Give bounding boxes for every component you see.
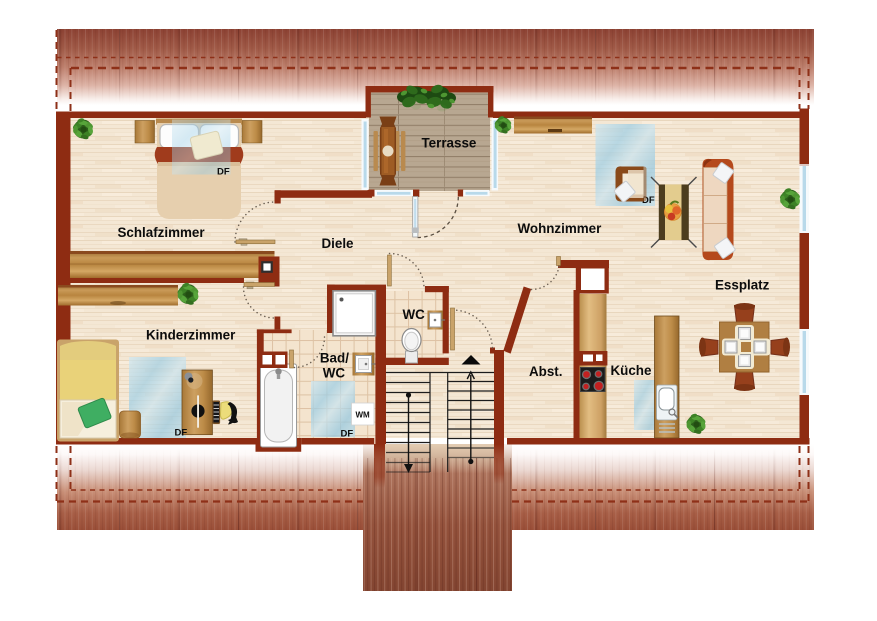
svg-text:Wohnzimmer: Wohnzimmer: [518, 221, 603, 236]
svg-text:WC: WC: [403, 307, 426, 322]
svg-text:Abst.: Abst.: [529, 364, 562, 379]
svg-text:Essplatz: Essplatz: [715, 277, 770, 292]
svg-text:Bad/: Bad/: [320, 351, 349, 366]
svg-text:WM: WM: [356, 411, 371, 420]
svg-text:DF: DF: [175, 428, 188, 439]
svg-text:Terrasse: Terrasse: [422, 135, 477, 150]
svg-text:Kinderzimmer: Kinderzimmer: [146, 328, 236, 343]
svg-text:Diele: Diele: [322, 236, 354, 251]
svg-text:WC: WC: [323, 366, 346, 381]
svg-text:DF: DF: [217, 167, 230, 178]
svg-text:Schlafzimmer: Schlafzimmer: [118, 225, 206, 240]
svg-text:DF: DF: [341, 429, 354, 440]
svg-text:Küche: Küche: [611, 363, 652, 378]
